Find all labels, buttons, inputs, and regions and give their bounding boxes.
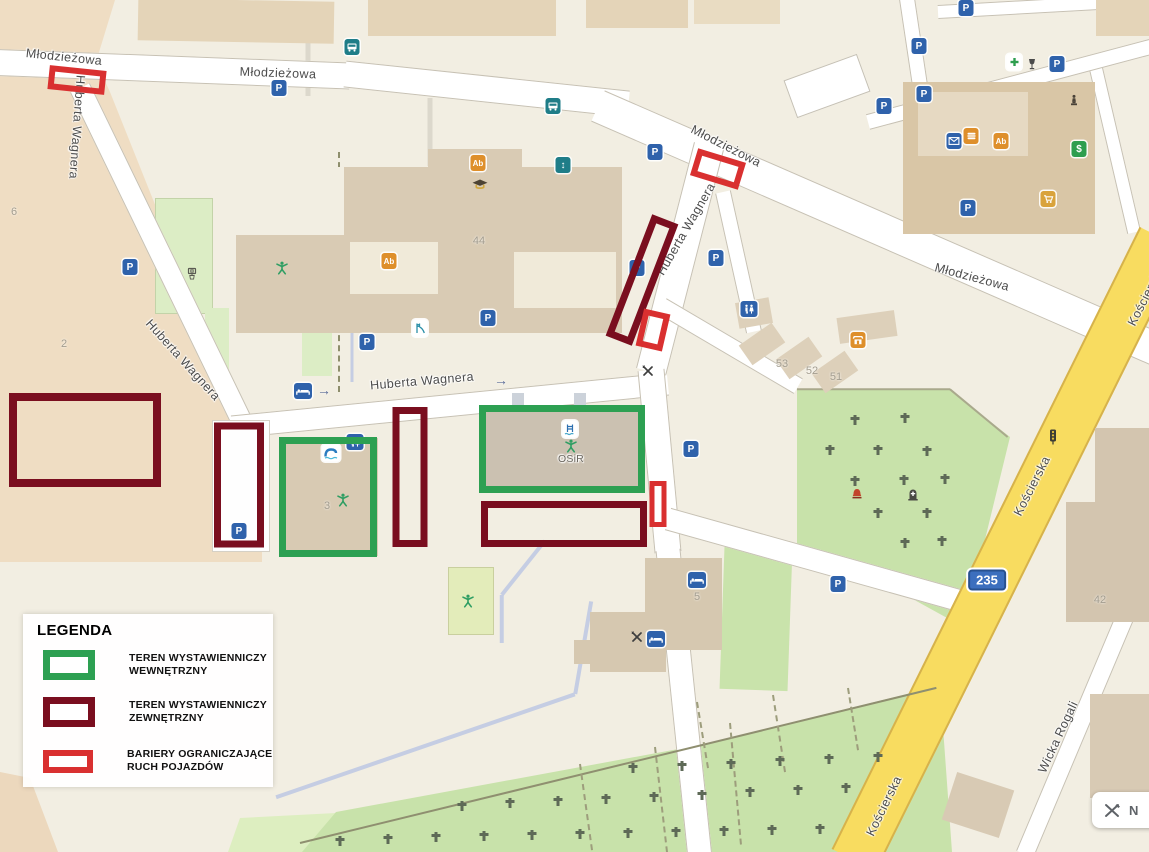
cemetery-cross-icon xyxy=(904,538,907,548)
cemetery-cross-icon xyxy=(771,825,774,835)
cemetery-cross-icon xyxy=(675,827,678,837)
cemetery-cross-icon xyxy=(653,792,656,802)
hotel-icon xyxy=(647,631,665,647)
cemetery-cross-icon xyxy=(819,824,822,834)
building-northeast-upper xyxy=(918,92,1028,156)
building-white xyxy=(784,54,871,118)
building-top xyxy=(368,0,556,36)
cemetery-cross-icon xyxy=(730,759,733,769)
building-44-notch xyxy=(236,167,344,235)
cemetery-cross-icon xyxy=(903,475,906,485)
building-east xyxy=(1090,694,1149,798)
bell-icon xyxy=(852,488,863,500)
legend-item-barrier-line2: RUCH POJAZDÓW xyxy=(127,761,224,773)
mail-icon xyxy=(947,133,962,149)
legend-item-inner: TEREN WYSTAWIENNICZY WEWNĘTRZNY xyxy=(37,650,273,680)
overlay-exhibition-outer xyxy=(393,407,428,547)
road-mlodziezowa-center xyxy=(344,61,630,118)
legend-item-outer-line2: ZEWNĘTRZNY xyxy=(129,712,204,724)
legend-item-barrier-line1: BARIERY OGRANICZAJĄCE xyxy=(127,748,272,760)
parking-icon: P xyxy=(877,98,892,114)
building-number: 42 xyxy=(1094,594,1106,606)
overlay-exhibition-outer xyxy=(9,393,161,487)
cemetery-cross-icon xyxy=(877,752,880,762)
cemetery-cross-icon xyxy=(828,754,831,764)
memorial-icon xyxy=(908,489,919,501)
route-badge: 235 xyxy=(968,570,1006,591)
cemetery-cross-icon xyxy=(579,829,582,839)
edit-map-label: N xyxy=(1129,803,1138,818)
parking-icon: P xyxy=(959,0,974,16)
building-5-wing xyxy=(574,640,592,664)
legend-swatch-barrier-icon xyxy=(43,750,93,773)
cemetery-cross-icon xyxy=(387,834,390,844)
school-icon: Ab xyxy=(382,253,397,269)
legend-swatch-inner-icon xyxy=(43,650,95,680)
sports-person-icon xyxy=(462,594,475,608)
cemetery-cross-icon xyxy=(627,828,630,838)
toilets-icon xyxy=(741,301,758,317)
building-kiosk xyxy=(836,310,897,344)
graduation-cap-icon xyxy=(473,180,488,191)
building-number: 52 xyxy=(806,365,818,377)
building-top xyxy=(1096,0,1149,36)
road-local xyxy=(657,298,802,394)
street-label: Młodzieżowa xyxy=(239,65,316,82)
school-icon: Ab xyxy=(994,133,1009,149)
edit-map-button[interactable]: N xyxy=(1092,792,1149,828)
cemetery-cross-icon xyxy=(723,826,726,836)
building-42-wing xyxy=(1095,428,1149,502)
road-local xyxy=(1087,58,1141,233)
cemetery-cross-icon xyxy=(845,783,848,793)
legend-item-outer-line1: TEREN WYSTAWIENNICZY xyxy=(129,699,267,711)
legend-title: LEGENDA xyxy=(37,622,273,639)
cemetery-cross-icon xyxy=(877,445,880,455)
parking-icon: P xyxy=(912,38,927,54)
cemetery-cross-icon xyxy=(904,413,907,423)
oneway-arrow-icon: → xyxy=(494,372,508,388)
currency-exchange-icon: $ xyxy=(1072,141,1087,157)
parking-icon: P xyxy=(917,86,932,102)
building-top xyxy=(586,0,688,28)
cemetery-cross-icon xyxy=(944,474,947,484)
building-number: 51 xyxy=(830,371,842,383)
cemetery-cross-icon xyxy=(509,798,512,808)
shopping-cart-icon xyxy=(1041,191,1056,207)
cemetery-cross-icon xyxy=(461,801,464,811)
parking-icon: P xyxy=(360,334,375,350)
oneway-arrow-icon: → xyxy=(317,382,331,398)
cemetery-cross-icon xyxy=(829,445,832,455)
building-42 xyxy=(1066,502,1149,622)
overlay-vehicle-barrier xyxy=(650,481,667,527)
legend-item-inner-line1: TEREN WYSTAWIENNICZY xyxy=(129,652,267,664)
cemetery-cross-icon xyxy=(877,508,880,518)
hotel-icon xyxy=(294,383,312,399)
legend-item-barrier: BARIERY OGRANICZAJĄCE RUCH POJAZDÓW xyxy=(37,748,273,774)
parking-icon: P xyxy=(481,310,496,326)
building-south xyxy=(942,772,1015,838)
building-number: 53 xyxy=(776,358,788,370)
cemetery-cross-icon xyxy=(557,796,560,806)
cemetery-cross-icon xyxy=(681,761,684,771)
elevator-icon: ↕ xyxy=(556,157,571,173)
cemetery-cross-icon xyxy=(926,446,929,456)
bus-stop-icon xyxy=(546,98,561,114)
cemetery-cross-icon xyxy=(941,536,944,546)
parking-icon: P xyxy=(831,576,846,592)
cemetery-cross-icon xyxy=(749,787,752,797)
building-44-courtyard xyxy=(514,252,616,308)
cemetery-cross-icon xyxy=(531,830,534,840)
cemetery-cross-icon xyxy=(435,832,438,842)
statue-icon xyxy=(1069,94,1079,106)
fast-food-icon xyxy=(964,128,979,144)
footpath xyxy=(500,595,504,643)
parking-icon: P xyxy=(123,259,138,275)
kiosk-icon xyxy=(851,332,866,348)
overlay-exhibition-inner xyxy=(479,405,645,493)
legend-item-inner-line2: WEWNĘTRZNY xyxy=(129,665,207,677)
parking-icon: P xyxy=(272,80,287,96)
building-number: 2 xyxy=(61,338,67,350)
cemetery-cross-icon xyxy=(701,790,704,800)
cemetery-cross-icon xyxy=(632,763,635,773)
cemetery-cross-icon xyxy=(797,785,800,795)
overlay-exhibition-outer xyxy=(214,423,264,548)
map-canvas[interactable]: PPPPPPPPPPPPPPPP↕AbAbAb$→→MłodzieżowaMło… xyxy=(0,0,1149,852)
basketball-court-icon xyxy=(185,268,199,281)
hotel-icon xyxy=(688,572,706,588)
traffic-light-icon xyxy=(1049,429,1057,445)
edit-pencil-icon xyxy=(1104,803,1121,818)
street-label: Huberta Wagnera xyxy=(369,369,474,392)
cemetery-cross-icon xyxy=(926,508,929,518)
restaurant-icon xyxy=(631,631,644,644)
parking-icon: P xyxy=(709,250,724,266)
overlay-exhibition-outer xyxy=(481,501,647,547)
building-number: 6 xyxy=(11,206,17,218)
parking-icon: P xyxy=(1050,56,1065,72)
cemetery-cross-icon xyxy=(339,836,342,846)
legend-box: LEGENDA TEREN WYSTAWIENNICZY WEWNĘTRZNY … xyxy=(23,614,273,787)
cemetery-cross-icon xyxy=(854,476,857,486)
restaurant-icon xyxy=(642,365,655,378)
building-top xyxy=(694,0,780,24)
building-number: 44 xyxy=(473,235,485,247)
area-green-strip-east xyxy=(720,547,793,691)
cemetery-cross-icon xyxy=(605,794,608,804)
parking-icon: P xyxy=(961,200,976,216)
cemetery-cross-icon xyxy=(854,415,857,425)
sports-person-icon xyxy=(276,261,289,275)
cemetery-cross-icon xyxy=(483,831,486,841)
legend-item-outer: TEREN WYSTAWIENNICZY ZEWNĘTRZNY xyxy=(37,697,273,727)
fence-cemetery xyxy=(797,388,950,390)
playground-icon xyxy=(413,320,428,337)
cemetery-cross-icon xyxy=(779,756,782,766)
school-icon: Ab xyxy=(471,155,486,171)
legend-swatch-outer-icon xyxy=(43,697,95,727)
footpath xyxy=(501,540,547,596)
bus-stop-icon xyxy=(345,39,360,55)
building-top xyxy=(138,0,335,44)
parking-icon: P xyxy=(684,441,699,457)
building-number: 5 xyxy=(694,591,700,603)
parking-icon: P xyxy=(648,144,663,160)
pharmacy-icon xyxy=(1007,54,1022,70)
overlay-exhibition-inner xyxy=(279,437,377,557)
wine-bar-icon xyxy=(1027,58,1037,70)
